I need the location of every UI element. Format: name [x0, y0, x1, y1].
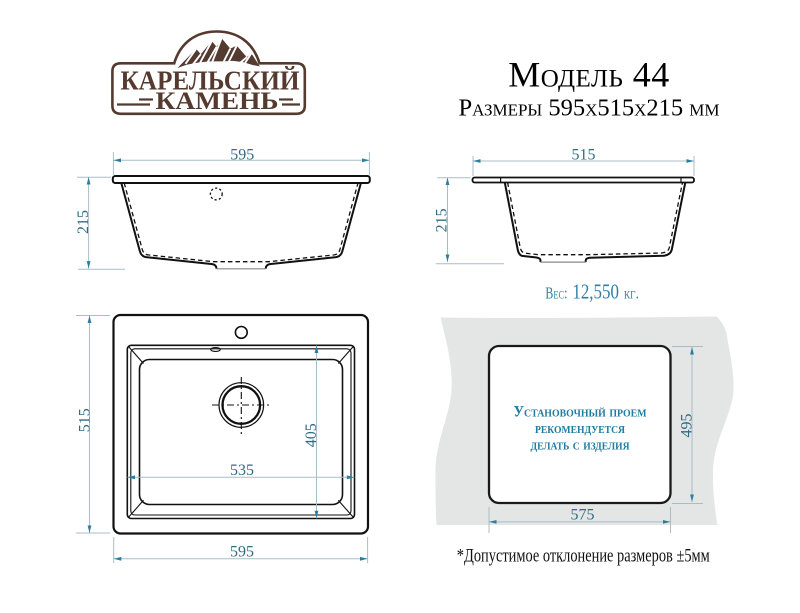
svg-text:515: 515: [77, 408, 94, 432]
svg-text:515: 515: [572, 147, 596, 164]
svg-text:делать с изделия: делать с изделия: [531, 436, 630, 453]
svg-text:КАМЕНЬ: КАМЕНЬ: [156, 88, 279, 115]
svg-text:Вес:12,550кг.: Вес:12,550кг.: [545, 280, 639, 304]
svg-text:495: 495: [679, 414, 696, 438]
svg-text:535: 535: [230, 462, 254, 479]
svg-text:215: 215: [75, 210, 92, 234]
svg-text:Модель 44: Модель 44: [508, 55, 670, 95]
svg-text:Установочный проем: Установочный проем: [514, 404, 648, 421]
svg-text:*Допустимое отклонение размеро: *Допустимое отклонение размеров ±5мм: [457, 547, 710, 567]
svg-text:Размеры 595х515х215 мм: Размеры 595х515х215 мм: [458, 95, 719, 122]
svg-text:рекомендуется: рекомендуется: [535, 420, 625, 437]
svg-text:215: 215: [433, 208, 450, 232]
svg-text:575: 575: [571, 507, 595, 524]
svg-text:595: 595: [230, 544, 254, 561]
svg-text:595: 595: [230, 147, 254, 164]
svg-text:405: 405: [303, 423, 320, 447]
